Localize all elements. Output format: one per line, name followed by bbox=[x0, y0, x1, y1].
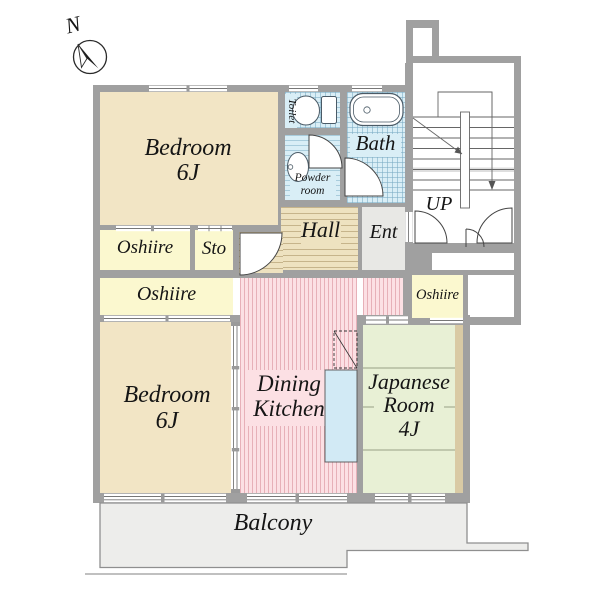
door-arcs bbox=[240, 135, 512, 275]
bathtub-drain-icon bbox=[364, 107, 370, 113]
oshiire-top-label: Oshiire bbox=[100, 238, 190, 257]
bath-door-arc bbox=[345, 158, 383, 196]
hall-door-arc bbox=[240, 233, 282, 275]
floor-plan: N Bedroom 6J Toilet Bath Powder room Hal… bbox=[0, 0, 600, 600]
hall-label: Hall bbox=[283, 219, 358, 241]
window-icons-top bbox=[149, 86, 382, 92]
japanese-room-size: 4J bbox=[360, 418, 458, 440]
japanese-room-label-1: Japanese bbox=[360, 371, 458, 393]
powder-door-arc bbox=[309, 135, 342, 168]
window-icons-bottom bbox=[104, 494, 445, 502]
storage-label: Sto bbox=[194, 239, 234, 258]
dining-kitchen-label-2: Kitchen bbox=[240, 397, 338, 420]
bedroom-bottom-name: Bedroom bbox=[106, 383, 228, 407]
japanese-room-label-2: Room bbox=[360, 394, 458, 416]
stairs-up-label: UP bbox=[414, 194, 464, 214]
entrance-label: Ent bbox=[362, 222, 405, 242]
stairs bbox=[413, 92, 514, 208]
compass-icon bbox=[74, 41, 107, 74]
stair-right-door-arc bbox=[477, 208, 512, 243]
oshiire-middle-label: Oshiire bbox=[100, 284, 233, 304]
powder-room-label-2: room bbox=[284, 186, 341, 198]
stair-left-door-arc bbox=[415, 211, 447, 243]
bedroom-top-name: Bedroom bbox=[127, 136, 249, 160]
bath-label: Bath bbox=[347, 133, 404, 154]
powder-room-label-1: Powder bbox=[284, 173, 341, 185]
dining-kitchen-label-1: Dining bbox=[240, 372, 338, 395]
toilet-tank-icon bbox=[322, 97, 337, 124]
oshiire-right-label: Oshiire bbox=[412, 288, 463, 303]
sink-tap-icon bbox=[288, 165, 293, 170]
balcony-label: Balcony bbox=[198, 511, 348, 535]
toilet-label: Toilet bbox=[286, 94, 297, 128]
entrance-door-gap bbox=[405, 212, 412, 242]
bedroom-top-size: 6J bbox=[127, 161, 249, 185]
partition-sliding-doors bbox=[231, 322, 240, 493]
bedroom-bottom-size: 6J bbox=[106, 409, 228, 433]
